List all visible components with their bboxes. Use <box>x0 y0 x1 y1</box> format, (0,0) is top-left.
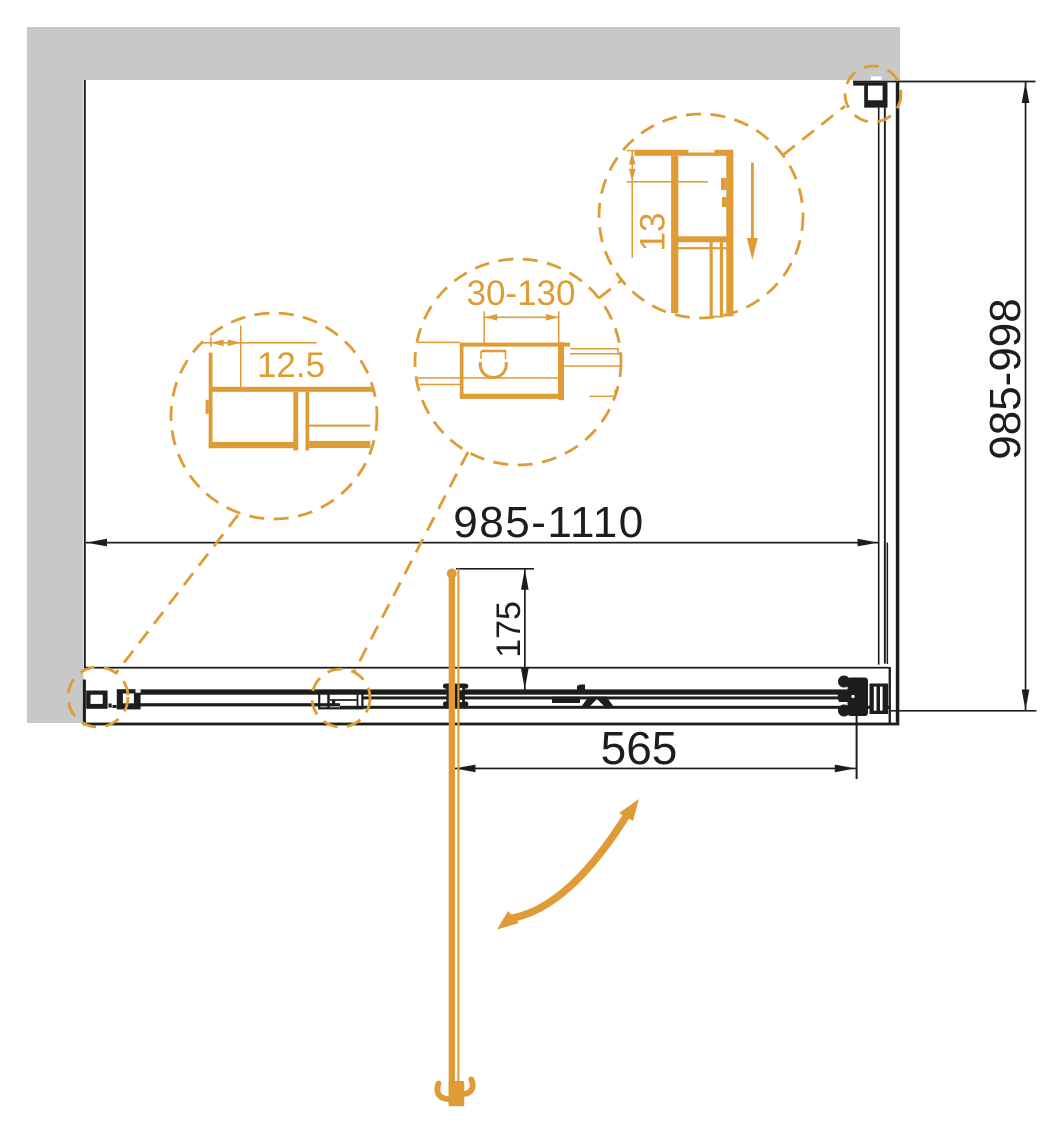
svg-text:985-998: 985-998 <box>981 298 1030 459</box>
svg-text:30-130: 30-130 <box>467 274 576 313</box>
svg-text:565: 565 <box>601 722 678 774</box>
svg-text:985-1110: 985-1110 <box>453 498 644 547</box>
svg-text:13: 13 <box>634 213 673 252</box>
svg-text:12.5: 12.5 <box>257 346 325 385</box>
svg-text:175: 175 <box>490 601 528 658</box>
